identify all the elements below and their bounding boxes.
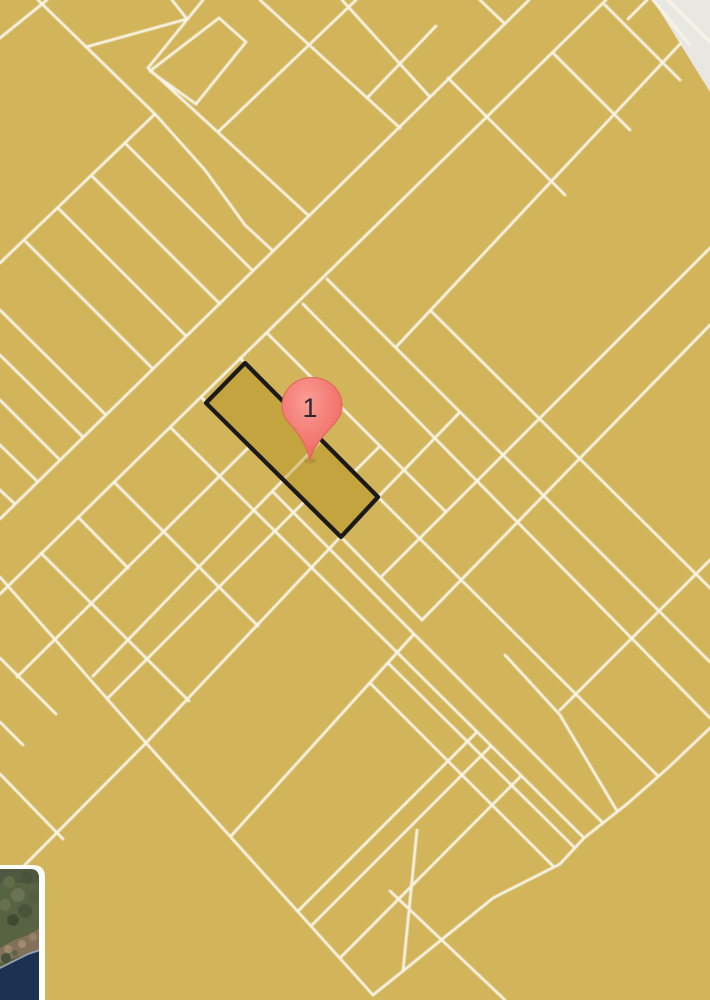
svg-text:1: 1: [302, 393, 317, 423]
